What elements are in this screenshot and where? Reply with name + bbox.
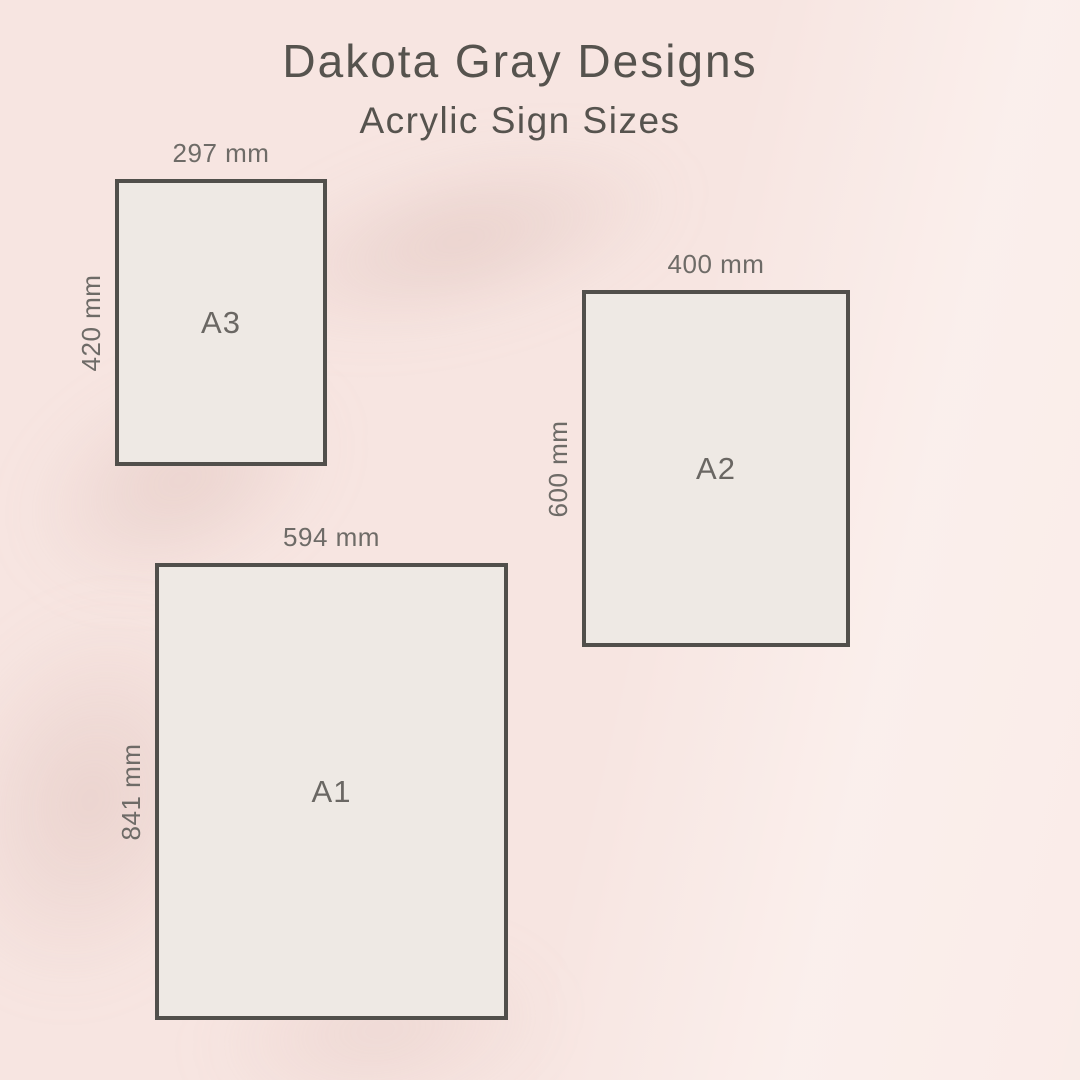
a2-width-label: 400 mm — [668, 249, 765, 280]
a2-height-label: 600 mm — [543, 420, 574, 517]
a3-height-label: 420 mm — [76, 274, 107, 371]
a3-size-label: A3 — [201, 305, 241, 341]
page-title: Dakota Gray Designs — [282, 34, 757, 88]
a1-width-label: 594 mm — [283, 522, 380, 553]
a1-height-label: 841 mm — [116, 743, 147, 840]
page-subtitle: Acrylic Sign Sizes — [282, 100, 757, 142]
header: Dakota Gray Designs Acrylic Sign Sizes — [282, 34, 757, 142]
sign-box-a2: 400 mm 600 mm A2 — [582, 290, 850, 647]
a2-size-label: A2 — [696, 451, 736, 487]
a3-width-label: 297 mm — [173, 138, 270, 169]
sign-box-a1: 594 mm 841 mm A1 — [155, 563, 508, 1020]
a1-size-label: A1 — [312, 774, 352, 810]
sign-box-a3: 297 mm 420 mm A3 — [115, 179, 327, 466]
